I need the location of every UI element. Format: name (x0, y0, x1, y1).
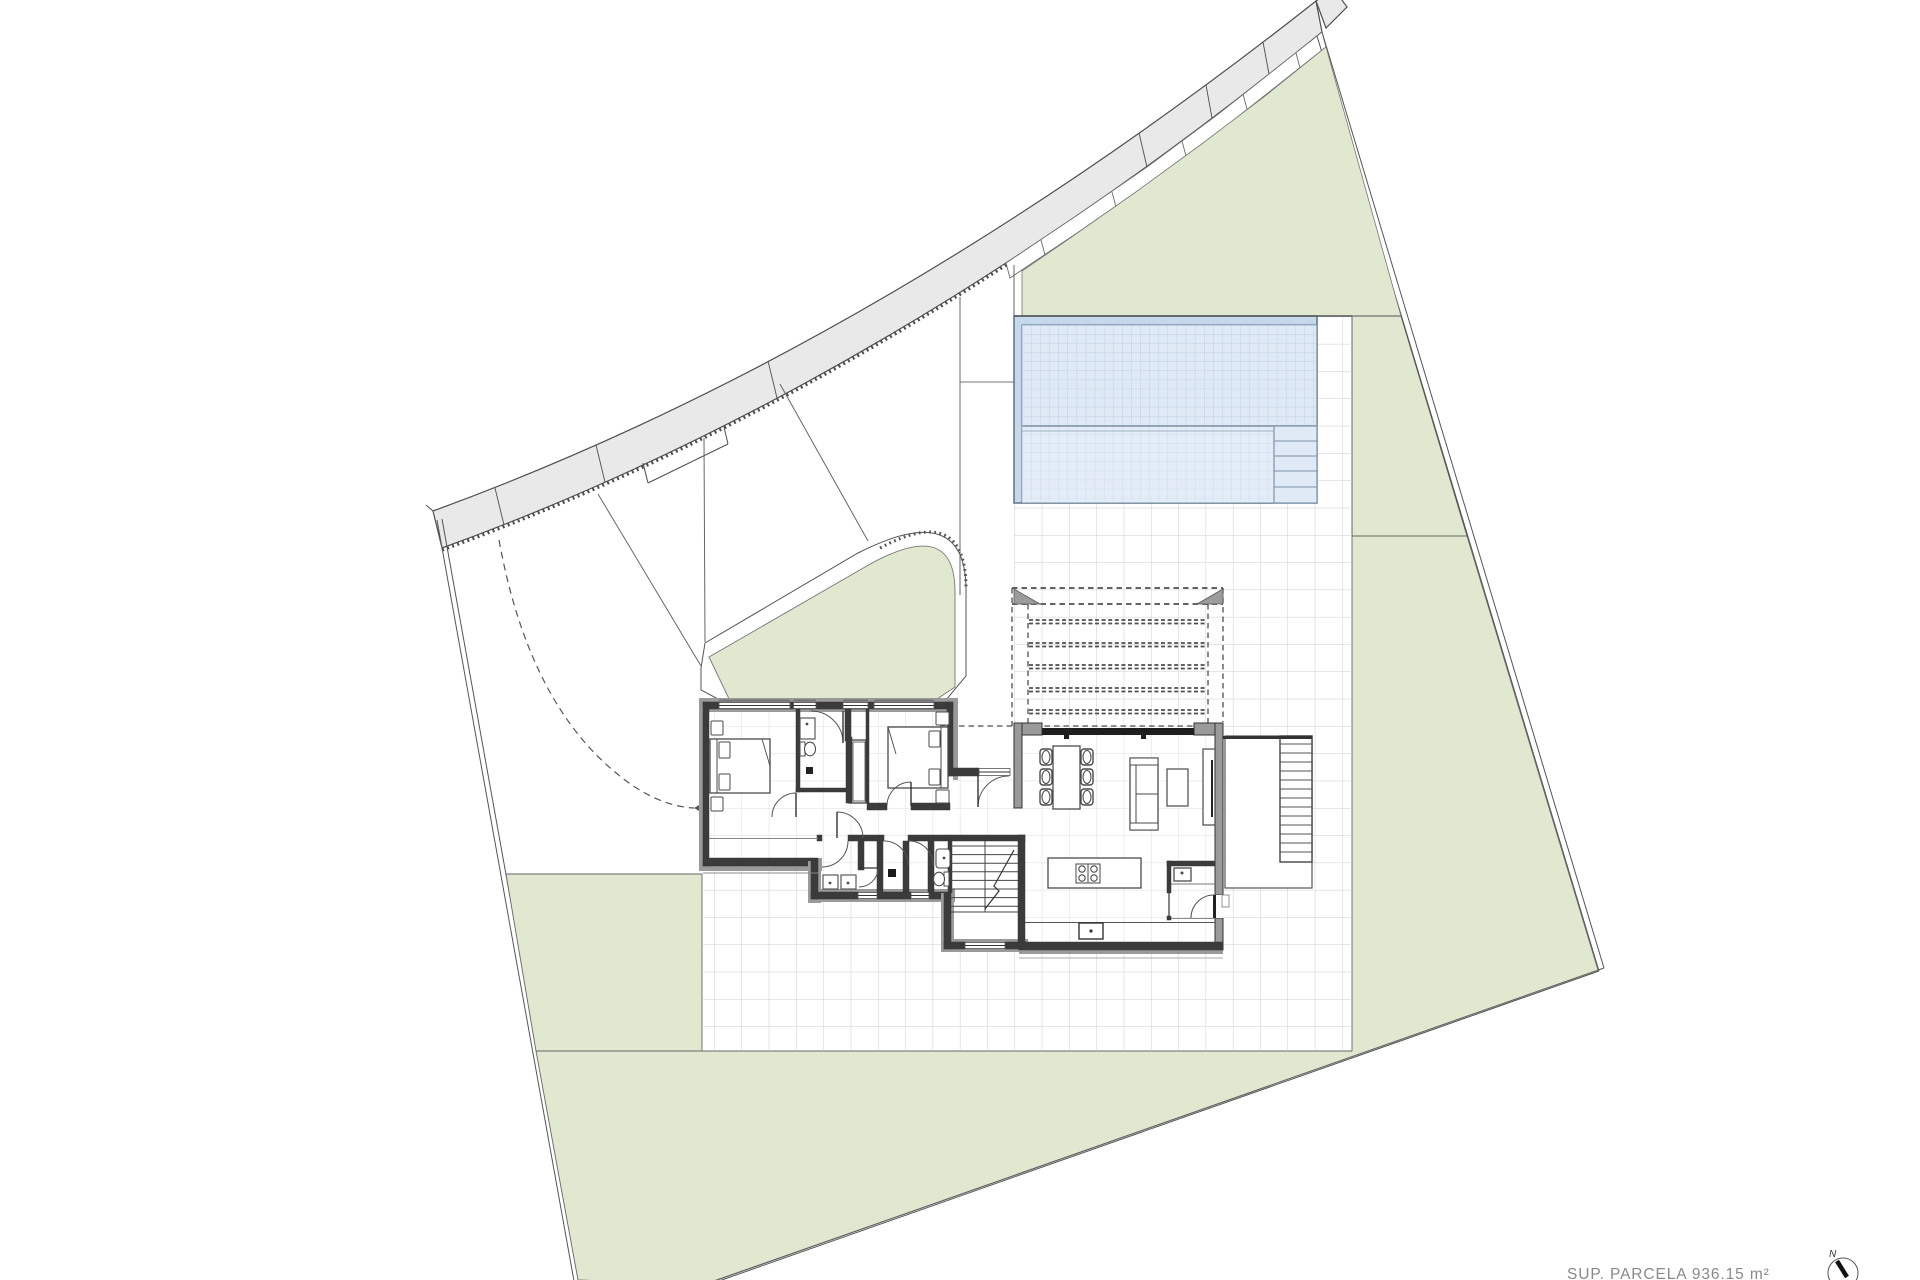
svg-text:N: N (1829, 1249, 1837, 1260)
svg-text:SUP. PARCELA 936.15 m²: SUP. PARCELA 936.15 m² (1567, 1266, 1770, 1280)
